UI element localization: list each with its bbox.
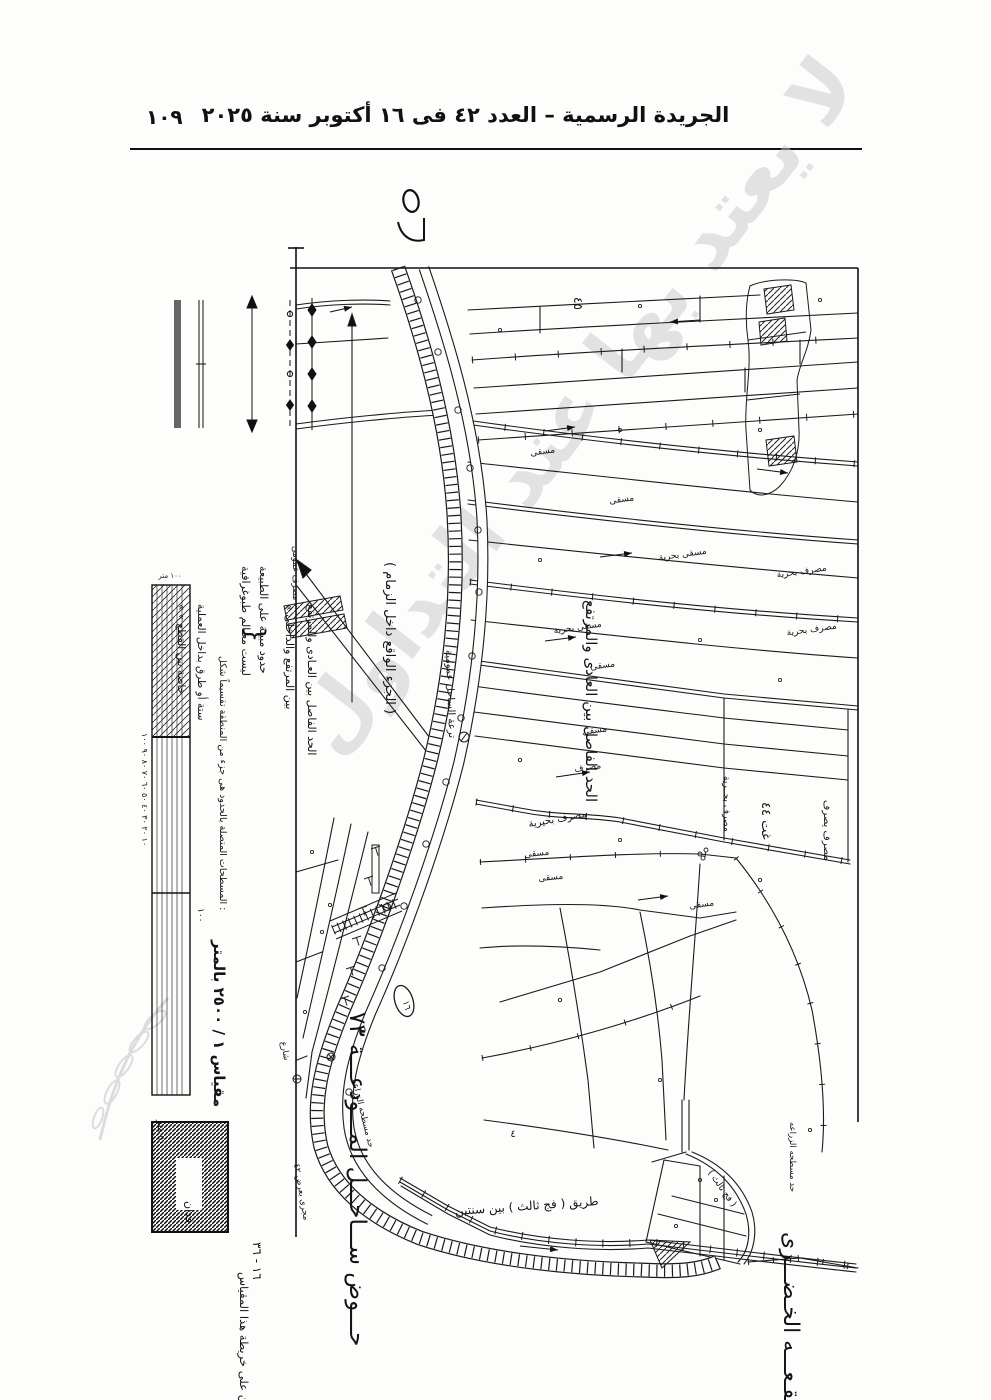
km-marker-number: ١٦ [400,1000,412,1012]
canal-label: مسقى [609,493,635,506]
hod-name-sub: ( الجزء الواقع داخل الزمام ) [382,562,397,714]
cadastral-map-svg: صورة إلكترونيةلا يعتد بها عند التداول [0,0,991,1400]
drain-note: مصرف يصرف [821,800,832,860]
canal-label: مصرف بحرية [786,622,837,639]
legend-label: ستة أو طرق بداخل العملية [195,604,209,721]
hod-name: حـــوض نقـعـــه الخـضـــرى [778,1232,803,1400]
sheet-number: ١٦ - ٣٦ [250,1242,264,1280]
hod-name: حـــوض ســـاحـــل المـــودعـــة ٧٣ [344,1012,370,1346]
channel-note: مجرى بعرض ٤٢ [291,1163,311,1221]
scale-tick: ١٠٠ [195,908,205,923]
canal-label: مصرف بحرية [776,564,827,581]
handwritten-mark [398,189,424,241]
canal-label: مصرف بحيرية [528,809,588,830]
canal-label: مسقى بحرية [658,547,707,564]
watermark-text: صورة إلكترونية [962,0,991,482]
number-note: ٤٥ [571,297,585,310]
feddan-caption: مساحة الفدان على خريطة هذا المقياس [236,1272,251,1400]
legend-label: المسطحات المتصلة بالحدود هى جزء من المنط… [217,656,230,910]
canal-label: مسقى [590,659,616,672]
boundary-note: حد مسطحه الزراعه [787,1122,797,1192]
village-blocks [746,280,811,495]
legend-label: الحد الفاصل بين العـادى والمرتفع [305,604,318,755]
scale-unit: ١٠٠ متر [157,572,181,580]
drain-note: مصرف بحــرية [721,776,731,832]
drain-note: مصرف عمومى [290,546,300,600]
canal-label: مسقى [582,724,608,737]
legend-label: « « خاصة بين القطع [175,604,187,694]
area-note: غت ٤٤ [758,802,773,840]
legend-label: « بين المرتفع والداخلى [283,604,296,709]
canal-label: مسقى [538,872,564,885]
watermark-text: لا يعتد بها عند التداول [277,39,877,770]
legend-label: ليست معـالم طبوغرافية [239,566,252,676]
legend-brace: } [240,626,270,643]
road-name: طريق ( فج ثالث ) بين سنتين [454,1194,599,1219]
street-note: شارع [278,1041,291,1061]
laurel-watermark-icon [90,998,168,1140]
gazette-page: ١٠٩ الجريدة الرسمية – العدد ٤٢ فى ١٦ أكت… [0,0,991,1400]
legend-symbols [174,296,316,432]
scale-tick: ٥٠٠ متر [155,1119,165,1150]
parcel-number: ٤ [510,1129,515,1140]
feddan-label: فدان [183,1201,196,1223]
scale-ticks: ١٠ ٢٠ ٣٠ ٤٠ ٥٠ ٦٠ ٧٠ ٨٠ ٩٠ ١٠٠ [140,733,149,846]
canal-label: مسقى [689,898,715,911]
legend-label: حدود مبينة على الطبيعة [257,566,270,674]
scale-label: مقياس ١ / ٢٥٠٠ بالمتر [210,939,228,1107]
